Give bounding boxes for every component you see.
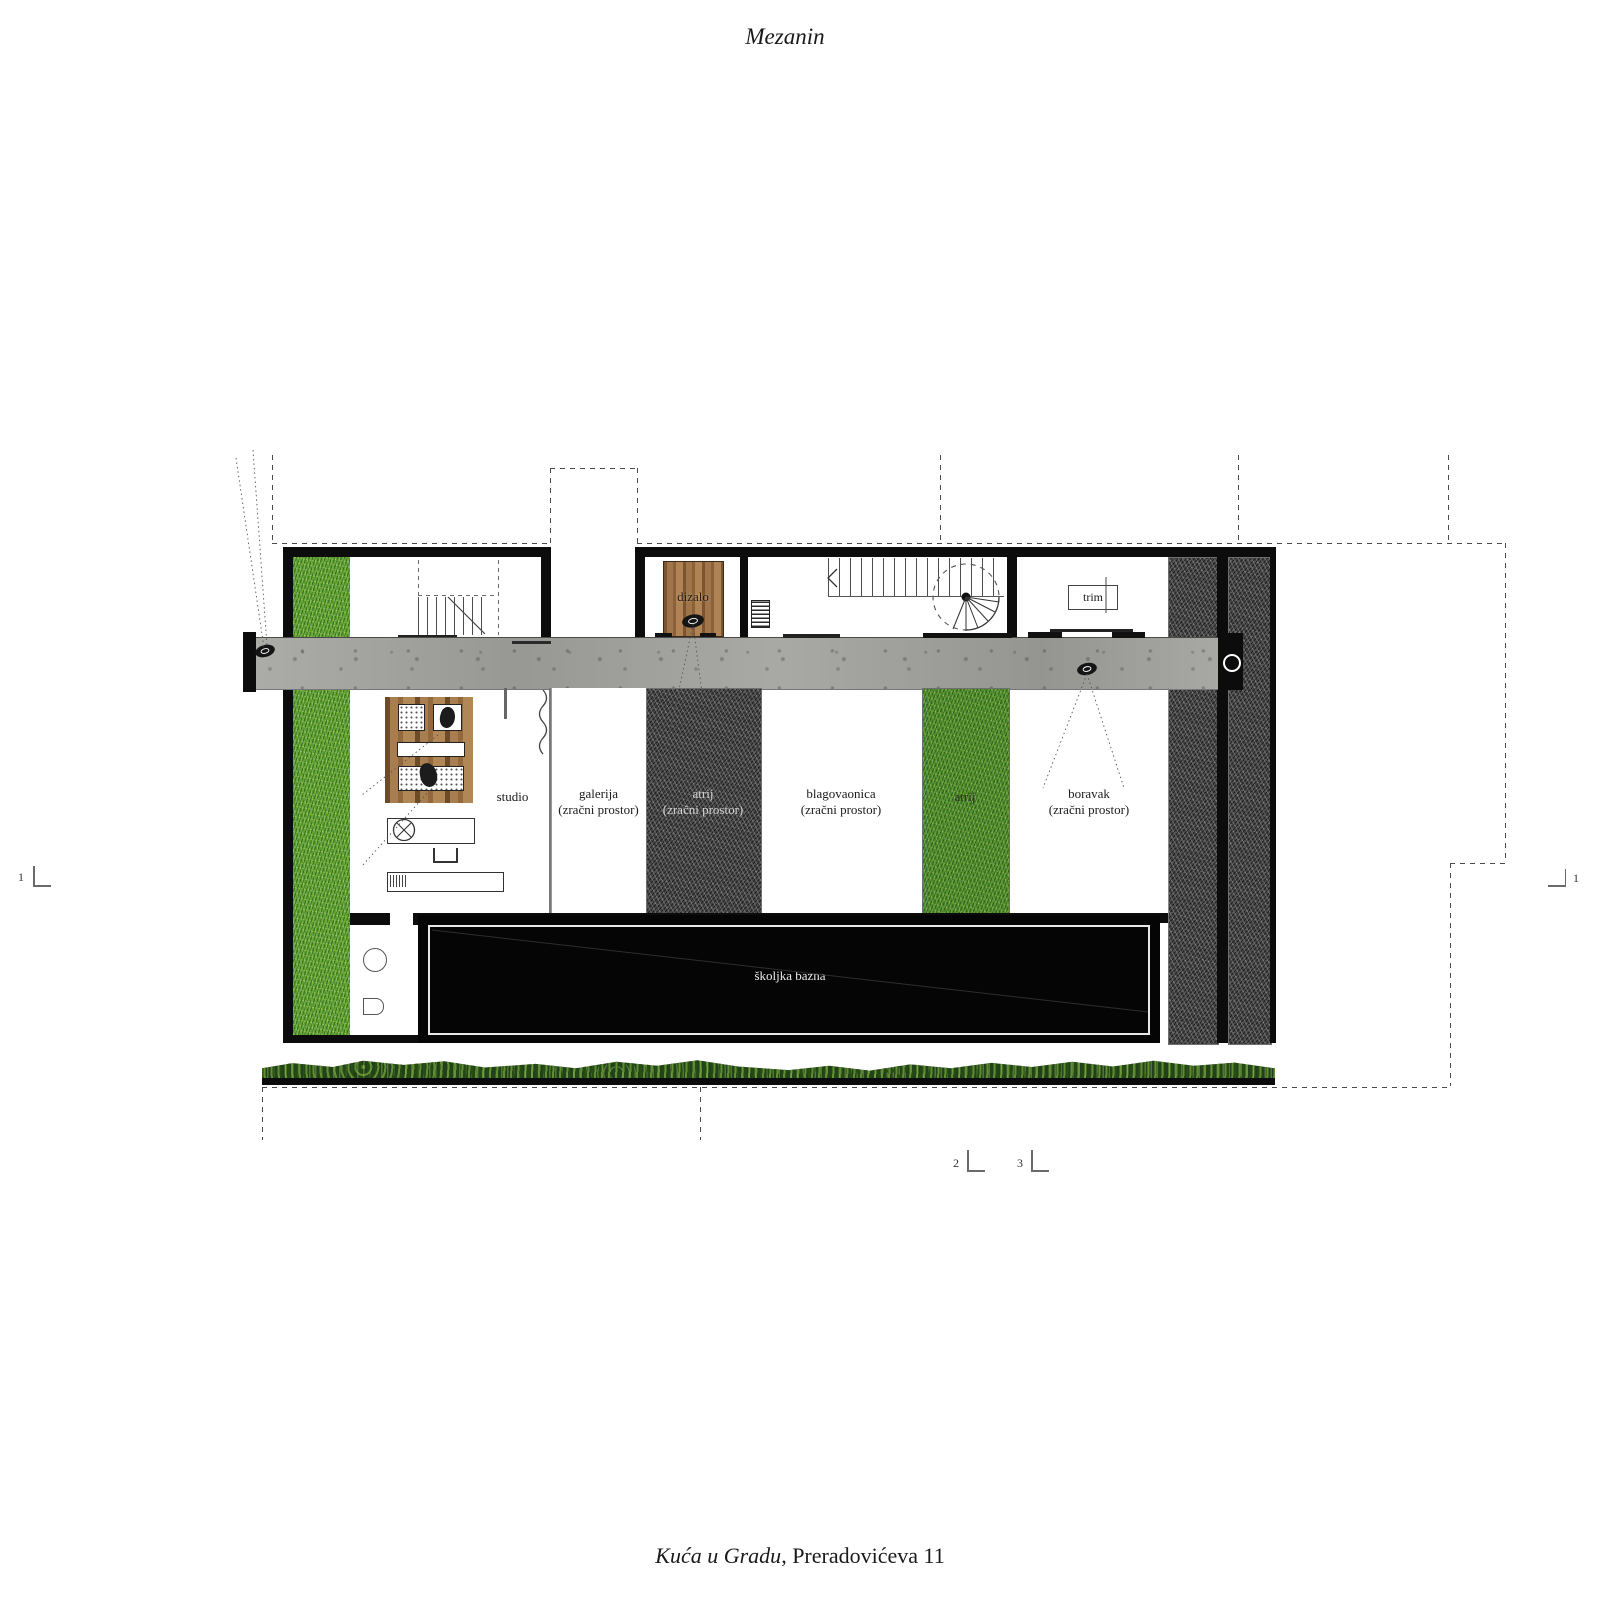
- wall-top-left: [283, 547, 551, 557]
- boundary-right-step: [1450, 863, 1506, 864]
- boundary-top-right: [637, 543, 1505, 544]
- boundary-tick-1: [272, 455, 273, 543]
- section-marker-1-right-h: [1548, 885, 1566, 887]
- wall-divider-right-strips: [1217, 547, 1228, 1043]
- page-title: Mezanin: [600, 24, 970, 50]
- boundary-bump-left: [550, 468, 551, 543]
- trim-room-box: trim: [1068, 585, 1118, 610]
- street-edge-wall: [262, 1078, 1275, 1085]
- studio-bench: [397, 742, 465, 757]
- wall-chimney-right: [635, 557, 645, 637]
- section-marker-3-v: [1031, 1150, 1033, 1171]
- sink-icon: [363, 998, 384, 1015]
- wall-bottom-left: [283, 1035, 420, 1043]
- section-marker-1-left-h: [33, 885, 51, 887]
- room-label-galerija: galerija(zračni prostor): [541, 786, 656, 818]
- door-tick-2: [655, 633, 672, 637]
- grille-icon: [751, 600, 770, 628]
- section-marker-1-left: 1: [18, 870, 24, 885]
- wall-elevator-right: [740, 557, 748, 637]
- bathroom-wall-top: [350, 913, 390, 925]
- boundary-bottom-tick-mid: [700, 1087, 701, 1140]
- hedge-strip: [262, 1054, 1275, 1080]
- dark-paving-strip-a: [1168, 557, 1219, 1045]
- wall-top-right: [635, 547, 1276, 557]
- stair-opening-dash-left: [418, 560, 419, 597]
- shelf-slats: [390, 875, 407, 887]
- grass-strip-left: [293, 557, 350, 1035]
- section-marker-1-right-v: [1565, 869, 1567, 886]
- boundary-bottom-tick-left: [262, 1087, 263, 1140]
- wall-chimney-left: [541, 557, 551, 637]
- wall-left: [283, 547, 293, 1043]
- boundary-right-upper: [1505, 543, 1506, 863]
- dark-paving-strip-b: [1228, 557, 1272, 1045]
- floor-plan-sheet: Mezanin dizalo trim: [0, 0, 1600, 1600]
- squiggle-line: [540, 690, 547, 754]
- wall-stub-below-walkway: [504, 688, 507, 719]
- caption-project-name: Kuća u Gradu: [655, 1543, 781, 1568]
- door-tick-7: [1028, 632, 1062, 638]
- room-label-atrij-dark: atrij(zračni prostor): [645, 786, 761, 818]
- boravak-right-line: [1168, 688, 1169, 915]
- section-marker-2-v: [967, 1150, 969, 1171]
- caption-address: , Preradovićeva 11: [781, 1543, 945, 1568]
- boundary-bump-top: [550, 468, 637, 469]
- walkway: [243, 637, 1218, 690]
- boundary-tick-2: [940, 455, 941, 543]
- bathroom: [350, 913, 418, 1035]
- section-marker-1-right: 1: [1573, 871, 1579, 886]
- door-tick-1: [512, 641, 551, 644]
- stool-u-shape: [433, 848, 458, 863]
- section-marker-3-h: [1031, 1170, 1049, 1172]
- spiral-stair-fan: [953, 597, 999, 631]
- elevator-label: dizalo: [664, 589, 722, 605]
- room-label-boravak: boravak(zračni prostor): [1021, 786, 1157, 818]
- sheet-caption: Kuća u Gradu, Preradovićeva 11: [450, 1543, 1150, 1569]
- stair-opening-dash-right: [498, 560, 499, 635]
- section-marker-1-left-v: [33, 866, 35, 887]
- door-tick-5: [923, 633, 1012, 638]
- washer-box: [387, 818, 475, 844]
- walkway-end-ring-icon: [1223, 654, 1241, 672]
- boundary-right-lower: [1450, 863, 1451, 1086]
- door-tick-3: [700, 633, 716, 637]
- studio-panel-1: [398, 704, 425, 731]
- walkway-end-cap-left: [243, 632, 256, 692]
- spiral-stair-outer-arc: [966, 597, 999, 630]
- section-marker-3: 3: [1017, 1156, 1023, 1171]
- stair-opening-dash-bottom: [418, 595, 498, 596]
- straight-stair-treads: [828, 558, 1004, 597]
- section-marker-2: 2: [953, 1156, 959, 1171]
- pool-label: školjka bazna: [700, 968, 880, 984]
- wall-stair-right: [1007, 557, 1017, 637]
- straight-stair-edge: [828, 596, 1004, 597]
- boundary-top-left: [272, 543, 550, 544]
- boundary-tick-4: [1448, 455, 1449, 543]
- section-marker-2-h: [967, 1170, 985, 1172]
- toilet-icon: [363, 948, 387, 972]
- room-label-blagovaonica: blagovaonica(zračni prostor): [773, 786, 909, 818]
- door-tick-8: [1112, 632, 1145, 638]
- room-label-atrij-green: atrij: [925, 789, 1005, 805]
- wall-right-outer: [1270, 547, 1276, 1043]
- boundary-bump-right: [637, 468, 638, 543]
- boundary-tick-3: [1238, 455, 1239, 543]
- left-stair-treads: [418, 597, 484, 635]
- boundary-bottom: [262, 1087, 1450, 1088]
- door-tick-4: [783, 634, 840, 638]
